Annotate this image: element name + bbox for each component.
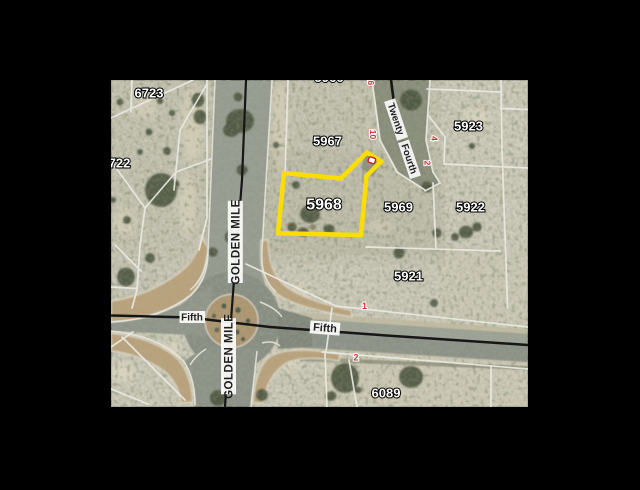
svg-text:2: 2: [423, 161, 433, 166]
svg-text:5921: 5921: [394, 269, 423, 284]
svg-text:10: 10: [368, 130, 378, 140]
svg-text:2: 2: [353, 353, 358, 363]
svg-text:GOLDEN MILE: GOLDEN MILE: [231, 199, 243, 284]
svg-text:5923: 5923: [454, 119, 483, 134]
svg-text:GOLDEN MILE: GOLDEN MILE: [224, 314, 236, 399]
svg-text:6089: 6089: [372, 386, 401, 401]
svg-text:1: 1: [362, 301, 367, 311]
svg-text:Fifth: Fifth: [313, 322, 338, 336]
svg-text:Fifth: Fifth: [181, 313, 203, 324]
svg-text:5967: 5967: [313, 134, 342, 149]
svg-text:5922: 5922: [456, 200, 485, 215]
svg-text:5969: 5969: [384, 200, 413, 215]
svg-text:6723: 6723: [135, 86, 164, 101]
svg-text:5968: 5968: [306, 197, 342, 214]
svg-text:4: 4: [430, 136, 440, 141]
svg-text:722: 722: [109, 156, 131, 171]
